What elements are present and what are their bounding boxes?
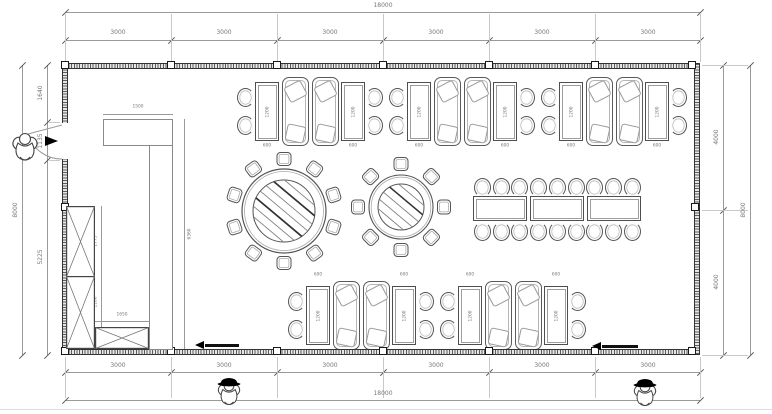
seat-cushion <box>365 327 387 348</box>
booth-sofa <box>312 77 339 146</box>
booth-sofa <box>333 281 360 350</box>
chair-icon <box>511 222 528 241</box>
booth-sofa <box>434 77 461 146</box>
dimension-line <box>65 12 700 13</box>
seat-cushion <box>335 327 357 348</box>
chair-icon <box>237 116 254 135</box>
booth-sofa <box>616 77 643 146</box>
booth-dining-set: 1200 600 1200 600 <box>287 280 435 352</box>
column-marker <box>379 61 387 69</box>
chair-icon <box>586 222 603 241</box>
column-marker <box>691 203 699 211</box>
banquet-table-section <box>473 196 527 221</box>
chair-icon <box>394 157 409 171</box>
dimension-label: 600 <box>263 144 271 148</box>
dimension-line <box>277 14 278 62</box>
chair-icon <box>624 178 641 197</box>
dimension-label: 600 <box>552 273 560 277</box>
dimension-label: 4000 <box>714 274 720 289</box>
chair-icon <box>530 178 547 197</box>
dimension-line <box>595 14 596 62</box>
dimension-line <box>702 355 748 356</box>
chair-icon <box>586 178 603 197</box>
dimension-label: 1200 <box>469 310 473 321</box>
dimension-label: 600 <box>501 144 509 148</box>
chair-icon <box>493 178 510 197</box>
dimension-label: 8000 <box>13 202 19 217</box>
dimension-label: 3000 <box>428 30 443 36</box>
dimension-label: 1200 <box>504 106 508 117</box>
chair-icon <box>394 243 409 257</box>
dimension-line <box>700 357 701 398</box>
dimension-label: 3000 <box>216 30 231 36</box>
dimension-label: 1200 <box>352 106 356 117</box>
dimension-label: 1640 <box>38 85 44 100</box>
dimension-label: 3000 <box>640 363 655 369</box>
dimension-label: 18000 <box>373 3 392 9</box>
dimension-label: 1500 <box>132 105 143 109</box>
dimension-label: 600 <box>653 144 661 148</box>
chair-icon <box>624 222 641 241</box>
dimension-line <box>702 65 748 66</box>
dining-table: 1200 <box>493 82 517 141</box>
banquet-table-section <box>587 196 641 221</box>
dimension-label: 3000 <box>110 363 125 369</box>
chair-icon <box>474 222 491 241</box>
chair-icon <box>493 222 510 241</box>
chair-icon <box>277 152 292 166</box>
dining-table: 1200 <box>341 82 365 141</box>
seat-cushion <box>487 327 509 348</box>
round-table-small <box>368 174 434 240</box>
booth-sofa <box>586 77 613 146</box>
chair-icon <box>549 222 566 241</box>
dimension-label: 3000 <box>110 30 125 36</box>
dimension-line <box>383 14 384 62</box>
dimension-label: 1200 <box>266 106 270 117</box>
column-marker <box>273 61 281 69</box>
dimension-label: 5225 <box>38 249 44 264</box>
dimension-line <box>65 14 66 62</box>
dimension-line <box>700 14 701 62</box>
dimension-line <box>171 14 172 62</box>
dining-table: 1200 <box>645 82 669 141</box>
dimension-label: 3000 <box>216 363 231 369</box>
column-marker <box>379 347 387 355</box>
dimension-line <box>171 357 172 398</box>
person-hat-icon <box>630 376 660 412</box>
chair-icon <box>670 88 687 107</box>
dimension-label: 3000 <box>640 30 655 36</box>
chair-icon <box>511 178 528 197</box>
column-marker <box>591 61 599 69</box>
chair-icon <box>518 116 535 135</box>
seat-cushion <box>588 123 610 144</box>
chair-icon <box>605 222 622 241</box>
dimension-label: 1200 <box>317 310 321 321</box>
seat-cushion <box>284 123 306 144</box>
chair-icon <box>366 88 383 107</box>
dimension-line <box>489 357 490 398</box>
chair-icon <box>417 292 434 311</box>
seat-cushion <box>364 284 389 308</box>
dimension-label: 3000 <box>428 363 443 369</box>
column-marker <box>688 347 696 355</box>
dining-table: 1200 <box>407 82 431 141</box>
seat-cushion <box>466 123 488 144</box>
column-marker <box>167 61 175 69</box>
chair-icon <box>568 222 585 241</box>
chair-icon <box>237 88 254 107</box>
dimension-line <box>65 357 66 398</box>
seat-cushion <box>617 80 642 104</box>
dimension-label: 600 <box>415 144 423 148</box>
chair-icon <box>389 88 406 107</box>
dimension-label: 1200 <box>555 310 559 321</box>
chair-icon <box>440 320 457 339</box>
booth-dining-set: 1200 600 1200 600 <box>439 280 587 352</box>
dimension-label: 6360 <box>188 228 192 239</box>
entrance-arrow-icon <box>45 136 58 146</box>
door-leaf <box>205 344 239 347</box>
dimension-label: 4000 <box>714 129 720 144</box>
counter-arm-vertical <box>149 145 173 350</box>
door-leaf <box>602 345 638 348</box>
chair-icon <box>437 200 451 215</box>
seat-cushion <box>313 80 338 104</box>
dimension-label: 1200 <box>656 106 660 117</box>
booth-dining-set: 1200 600 1200 600 <box>540 76 688 148</box>
chair-icon <box>288 292 305 311</box>
chair-icon <box>541 116 558 135</box>
dimension-label: 1650 <box>116 313 127 317</box>
dimension-label: 1200 <box>570 106 574 117</box>
dining-table: 1200 <box>392 286 416 345</box>
seat-cushion <box>436 123 458 144</box>
chair-icon <box>474 178 491 197</box>
dining-table: 1200 <box>458 286 482 345</box>
banquet-table-section <box>530 196 584 221</box>
round-table-large <box>239 166 329 256</box>
chair-icon <box>670 116 687 135</box>
booth-dining-set: 1200 600 1200 600 <box>388 76 536 148</box>
dining-table: 1200 <box>544 286 568 345</box>
dimension-line <box>489 14 490 62</box>
dimension-label: 3000 <box>534 30 549 36</box>
booth-sofa <box>464 77 491 146</box>
counter-arm-top <box>103 119 173 146</box>
chair-icon <box>569 292 586 311</box>
dimension-label: 600 <box>349 144 357 148</box>
dimension-label: 8000 <box>741 202 747 217</box>
tall-cabinet <box>66 206 95 349</box>
dimension-label: 600 <box>466 273 474 277</box>
booth-sofa <box>282 77 309 146</box>
chair-icon <box>389 116 406 135</box>
chair-icon <box>568 178 585 197</box>
dining-table: 1200 <box>255 82 279 141</box>
person-hat-icon <box>214 374 244 412</box>
seat-cushion <box>334 284 359 308</box>
chair-icon <box>288 320 305 339</box>
chair-icon <box>366 116 383 135</box>
column-marker <box>61 61 69 69</box>
booth-sofa <box>485 281 512 350</box>
seat-cushion <box>516 284 541 308</box>
sideboard <box>95 327 149 349</box>
dimension-line <box>750 65 751 355</box>
dining-table: 1200 <box>559 82 583 141</box>
chair-icon <box>541 88 558 107</box>
chair-icon <box>530 222 547 241</box>
seat-cushion <box>283 80 308 104</box>
dimension-label: 600 <box>400 273 408 277</box>
booth-sofa <box>363 281 390 350</box>
chair-icon <box>277 256 292 270</box>
person-icon <box>8 127 42 167</box>
dimension-line <box>595 357 596 398</box>
dimension-label: 600 <box>567 144 575 148</box>
door-arrow-icon <box>592 342 601 350</box>
dimension-label: 3000 <box>322 363 337 369</box>
column-marker <box>688 61 696 69</box>
dimension-label: 1200 <box>403 310 407 321</box>
dimension-line <box>22 65 23 355</box>
chair-icon <box>351 200 365 215</box>
booth-dining-set: 1200 600 1200 600 <box>236 76 384 148</box>
door-arrow-icon <box>195 341 204 349</box>
floor-plan-canvas: 1800030003000300030003000300030003000300… <box>0 0 772 414</box>
seat-cushion <box>314 123 336 144</box>
dimension-label: 3000 <box>322 30 337 36</box>
seat-cushion <box>435 80 460 104</box>
seat-cushion <box>618 123 640 144</box>
seat-cushion <box>465 80 490 104</box>
dimension-label: 3000 <box>534 363 549 369</box>
seat-cushion <box>517 327 539 348</box>
column-marker <box>485 347 493 355</box>
dimension-label: 600 <box>314 273 322 277</box>
dimension-line <box>65 400 700 401</box>
booth-sofa <box>515 281 542 350</box>
seat-cushion <box>486 284 511 308</box>
chair-icon <box>417 320 434 339</box>
dimension-label: 18000 <box>373 391 392 397</box>
column-marker <box>273 347 281 355</box>
chair-icon <box>605 178 622 197</box>
chair-icon <box>549 178 566 197</box>
dimension-label: 1200 <box>418 106 422 117</box>
chair-icon <box>518 88 535 107</box>
dimension-line <box>47 65 48 355</box>
chair-icon <box>569 320 586 339</box>
dining-table: 1200 <box>306 286 330 345</box>
chair-icon <box>440 292 457 311</box>
column-marker <box>485 61 493 69</box>
seat-cushion <box>587 80 612 104</box>
dimension-line <box>277 357 278 398</box>
